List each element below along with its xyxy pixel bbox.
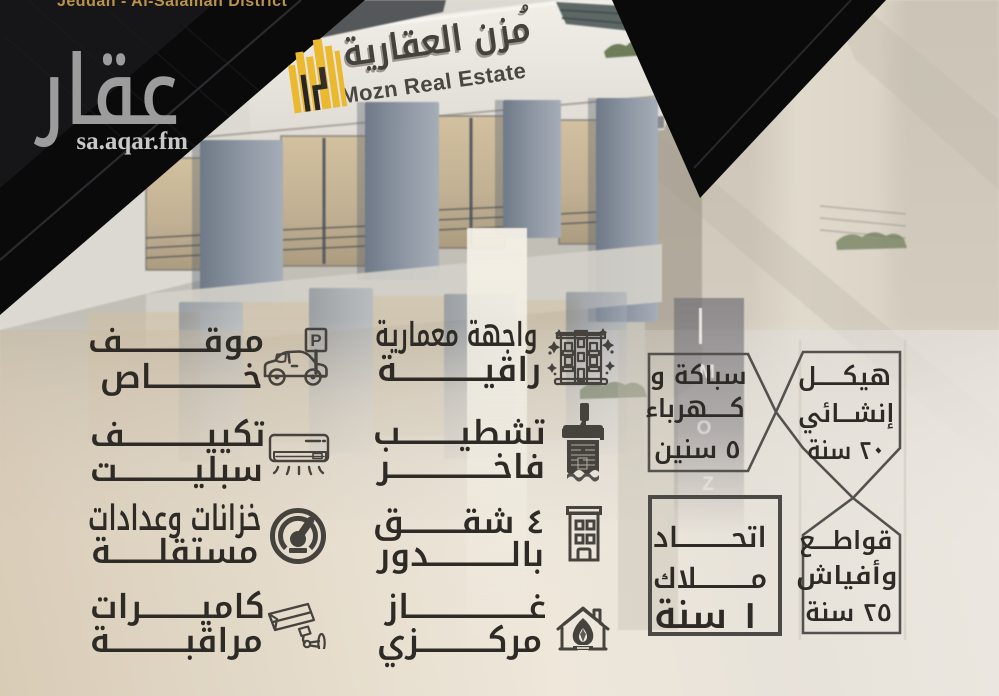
svg-text:P: P [310, 331, 321, 350]
